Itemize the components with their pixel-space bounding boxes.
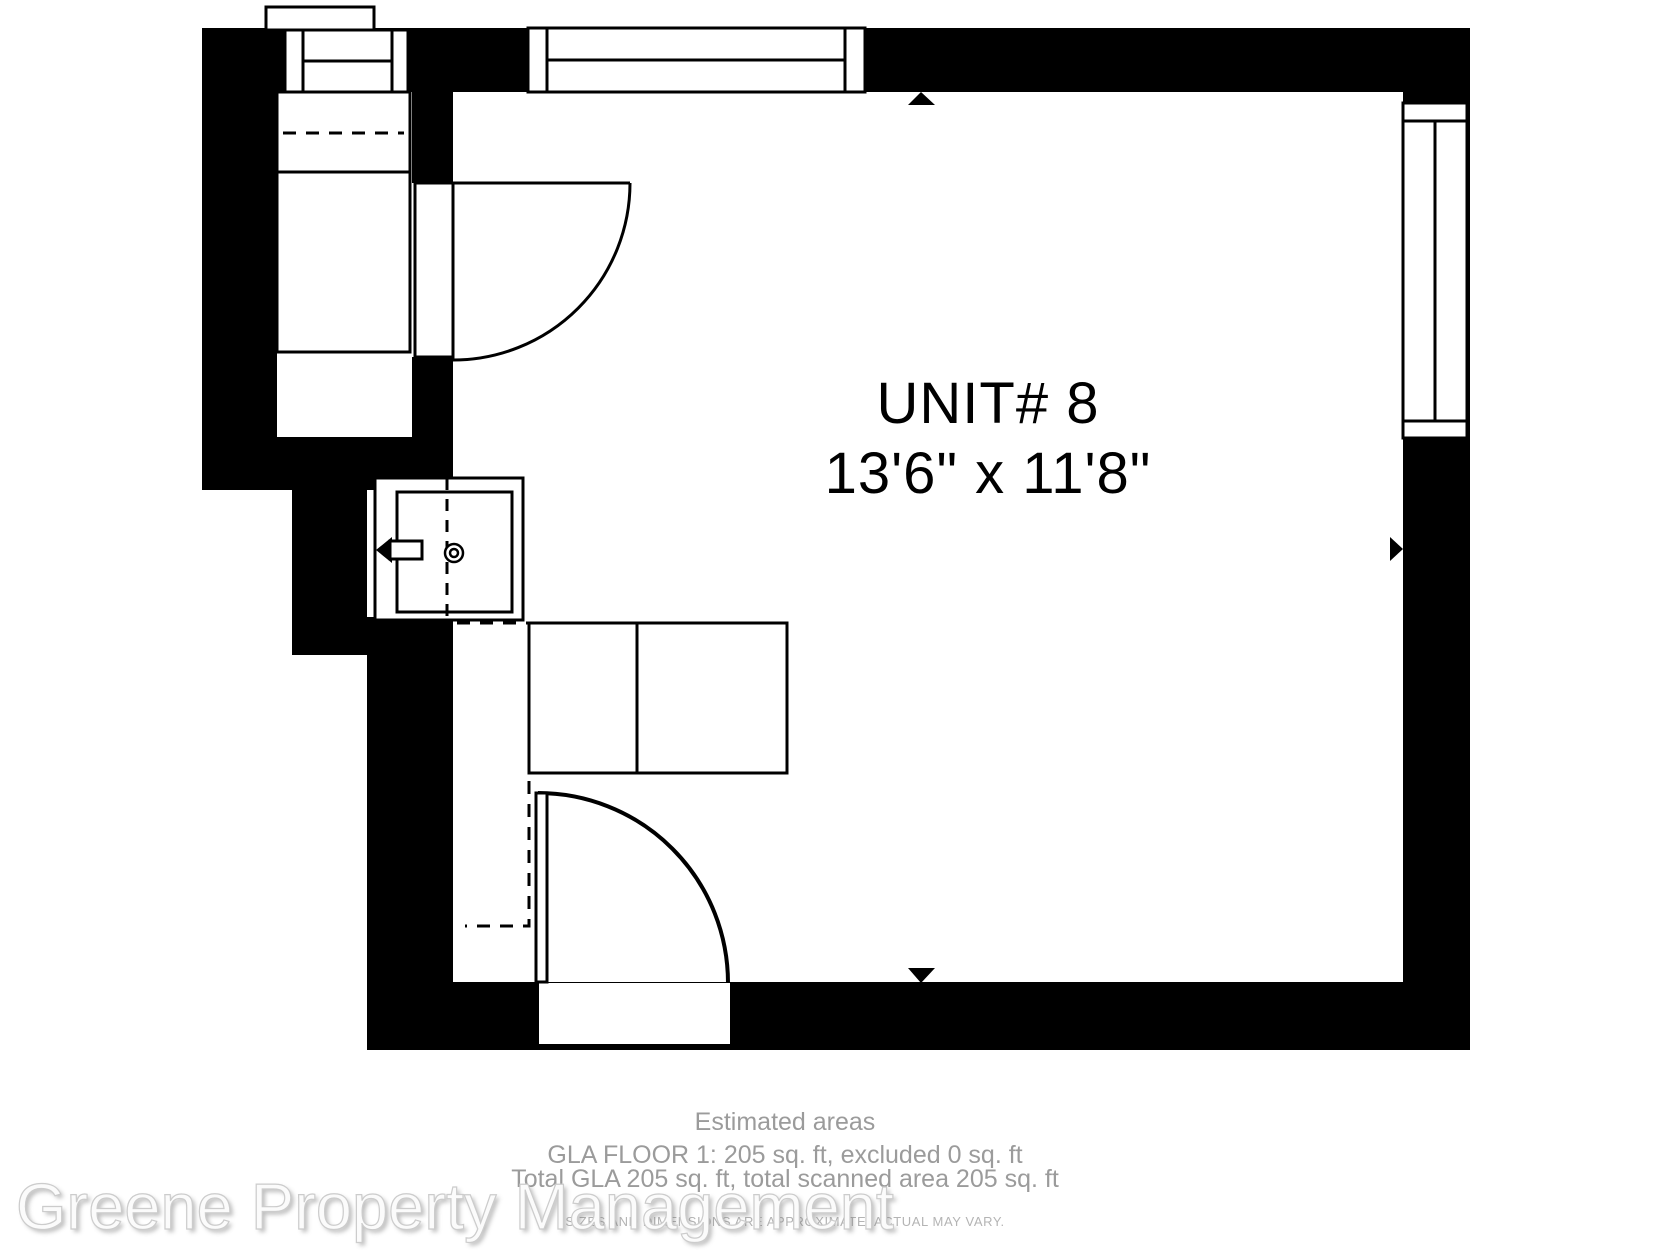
watermark-text: Greene Property Management <box>16 1172 894 1242</box>
markers <box>908 92 1403 983</box>
marker-arrow-down-icon <box>908 968 935 983</box>
kitchen-counter <box>457 623 787 926</box>
wardrobe-upper-box <box>277 92 410 172</box>
footer-estimated-areas: Estimated areas <box>385 1110 1185 1135</box>
door-leaf <box>415 183 453 357</box>
door-swing-arc <box>453 183 630 360</box>
window-top-center <box>528 28 865 92</box>
wall-above-interior-door <box>412 92 453 183</box>
door-swing-arc <box>538 793 728 983</box>
door-bottom <box>536 793 728 983</box>
marker-arrow-up-icon <box>908 92 935 105</box>
wall-below-interior-door <box>412 357 453 437</box>
wardrobe-lower-box <box>277 172 410 352</box>
wall-bottom <box>367 982 1470 1050</box>
faucet-handle <box>390 541 422 559</box>
counter-outline <box>529 623 787 773</box>
unit-dimensions-label: 13'6" x 11'8" <box>688 445 1288 503</box>
door-opening <box>539 983 730 1044</box>
door-top-left <box>415 183 630 360</box>
entry-opening <box>539 983 730 1050</box>
floorplan-canvas: UNIT# 8 13'6" x 11'8" Estimated areas GL… <box>0 0 1680 1260</box>
marker-arrow-right-icon <box>1390 537 1403 561</box>
window-sill <box>266 7 374 30</box>
window-right <box>1403 103 1467 438</box>
unit-number-label: UNIT# 8 <box>688 375 1288 433</box>
window-top-left <box>266 7 408 92</box>
drain-icon-inner <box>450 549 458 557</box>
wall-step-column-upper <box>292 490 367 655</box>
floorplan-drawing <box>0 0 1680 1260</box>
door-leaf <box>536 793 547 982</box>
shower-fixture <box>375 478 523 620</box>
wardrobe <box>277 92 410 352</box>
wall-left <box>202 28 277 490</box>
threshold-line <box>539 1044 730 1050</box>
counter-hidden-dashed-outline <box>457 623 529 926</box>
